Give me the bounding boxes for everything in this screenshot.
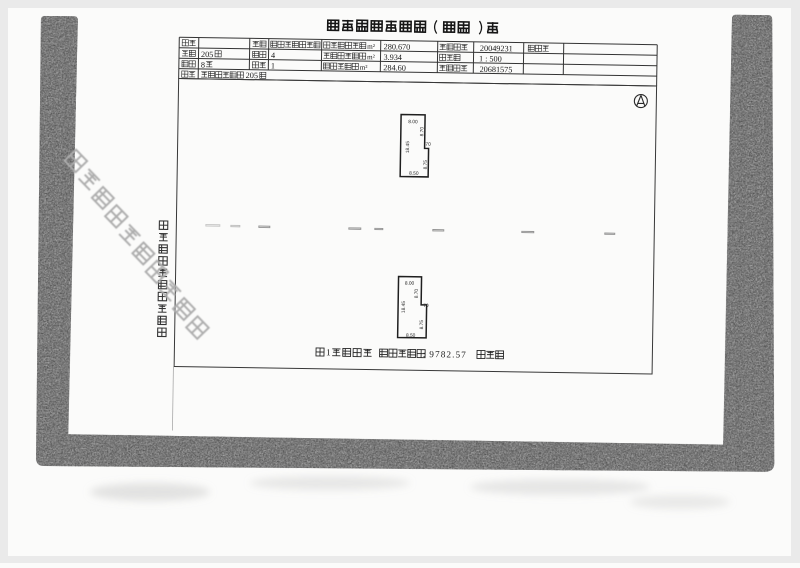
svg-text:20049231: 20049231 — [480, 44, 513, 54]
svg-text:4: 4 — [271, 51, 275, 60]
svg-text:8.70: 8.70 — [419, 127, 425, 137]
svg-text:8.50: 8.50 — [406, 333, 416, 339]
svg-text:70: 70 — [425, 142, 431, 148]
svg-text:205: 205 — [201, 50, 213, 59]
svg-text:1: 1 — [326, 347, 331, 357]
svg-text:8.00: 8.00 — [405, 281, 415, 287]
svg-text:280.670: 280.670 — [384, 42, 411, 51]
svg-text:8.70: 8.70 — [414, 289, 420, 299]
svg-text:205: 205 — [246, 71, 258, 80]
svg-text:284.60: 284.60 — [383, 63, 406, 72]
svg-text:m²: m² — [360, 64, 368, 72]
svg-text:8.50: 8.50 — [409, 171, 419, 177]
svg-text:1 : 500: 1 : 500 — [479, 54, 502, 63]
svg-text:20681575: 20681575 — [480, 65, 513, 75]
svg-text:9782.57: 9782.57 — [429, 349, 467, 360]
svg-text:1: 1 — [271, 62, 275, 71]
svg-text:3.934: 3.934 — [383, 53, 402, 62]
svg-text:18.45: 18.45 — [405, 141, 411, 153]
svg-text:18.45: 18.45 — [401, 301, 407, 313]
svg-text:m²: m² — [367, 43, 375, 51]
svg-text:70: 70 — [423, 303, 429, 309]
svg-text:8: 8 — [201, 60, 205, 69]
svg-text::: : — [423, 349, 426, 359]
svg-text:8.00: 8.00 — [408, 119, 418, 125]
svg-text:8.75: 8.75 — [419, 320, 425, 330]
svg-text:8.75: 8.75 — [423, 160, 429, 170]
svg-text:m²: m² — [367, 53, 375, 61]
